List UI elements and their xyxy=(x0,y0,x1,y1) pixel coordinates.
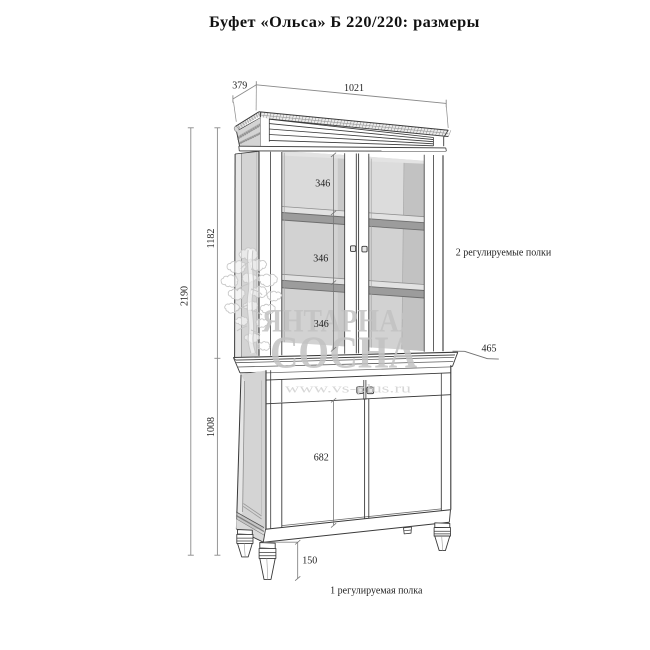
svg-text:465: 465 xyxy=(482,344,497,355)
svg-text:1182: 1182 xyxy=(206,229,217,249)
svg-text:1 регулируемая полка: 1 регулируемая полка xyxy=(330,585,423,596)
svg-text:379: 379 xyxy=(232,81,247,92)
svg-text:www.vs-plus.ru: www.vs-plus.ru xyxy=(285,381,412,396)
svg-text:2 регулируемые полки: 2 регулируемые полки xyxy=(456,248,552,259)
svg-text:СОСНА: СОСНА xyxy=(270,327,417,378)
svg-text:346: 346 xyxy=(313,254,328,265)
svg-text:346: 346 xyxy=(315,179,330,190)
svg-text:Буфет «Ольса» Б 220/220: разме: Буфет «Ольса» Б 220/220: размеры xyxy=(209,12,480,31)
svg-text:682: 682 xyxy=(314,453,329,464)
svg-text:1008: 1008 xyxy=(206,417,217,437)
svg-text:150: 150 xyxy=(302,556,317,567)
svg-text:1021: 1021 xyxy=(344,83,364,94)
svg-text:2190: 2190 xyxy=(179,286,190,306)
svg-text:346: 346 xyxy=(314,319,329,330)
